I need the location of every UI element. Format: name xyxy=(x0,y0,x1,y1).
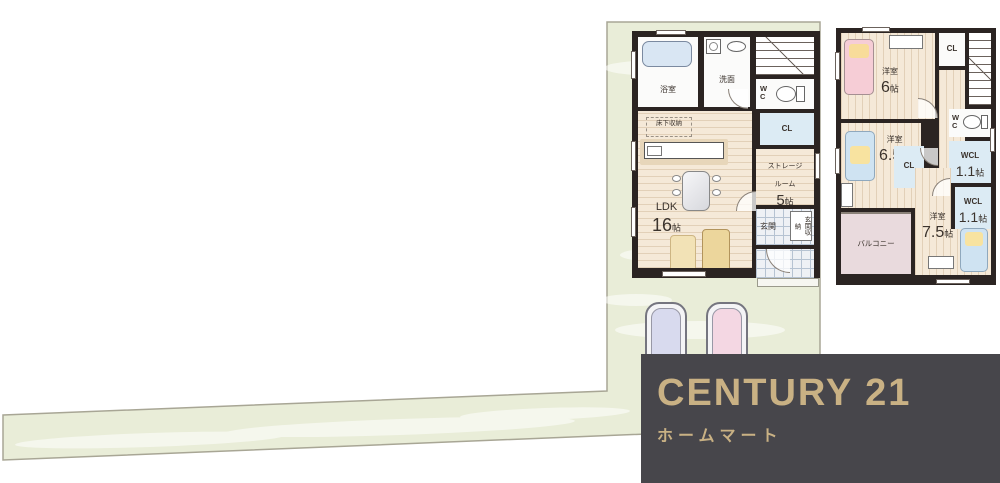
chair-icon xyxy=(672,189,681,196)
century21-logo: CENTURY 21 ホームマート xyxy=(641,354,1000,483)
toilet-icon xyxy=(796,86,805,102)
window-mark xyxy=(835,52,840,80)
underfloor-storage-label: 床下収納 xyxy=(647,120,691,128)
closet-top-label: CL xyxy=(939,44,965,53)
wc-label: WC xyxy=(760,85,769,100)
toilet-icon xyxy=(963,115,981,129)
bedroom-6-5-name: 洋室 xyxy=(887,135,903,144)
walk-in-closet-1: WCL 1.1帖 xyxy=(949,141,991,183)
ldk-size-unit: 帖 xyxy=(672,223,681,233)
window-mark xyxy=(631,51,636,79)
storage-room: ストレージ ルーム 5帖 xyxy=(756,149,814,205)
ldk-name: LDK xyxy=(656,201,677,213)
closet-top: CL xyxy=(939,33,965,66)
storage-size-number: 5 xyxy=(776,192,784,205)
chair-icon xyxy=(672,175,681,182)
chair-icon xyxy=(712,175,721,182)
ldk-label: LDK 16帖 xyxy=(652,197,681,237)
pillow-icon xyxy=(965,232,983,246)
bathtub-icon xyxy=(642,41,692,67)
wcl1-name: WCL xyxy=(961,151,979,160)
bedroom-7-5-name: 洋室 xyxy=(930,212,946,221)
brand-name: CENTURY 21 xyxy=(657,374,1000,412)
bedroom-6-name: 洋室 xyxy=(882,67,898,76)
bathroom: 浴室 xyxy=(638,37,698,107)
wcl1-label: WCL 1.1帖 xyxy=(949,145,991,182)
window-mark xyxy=(835,148,840,174)
walk-in-closet-2: WCL 1.1帖 xyxy=(955,187,991,229)
bedroom-7-5-label: 洋室 7.5帖 xyxy=(922,206,953,243)
toilet-tank-icon xyxy=(981,115,988,129)
entrance-step xyxy=(757,278,819,287)
sink-icon xyxy=(727,41,746,52)
washing-machine-icon xyxy=(706,39,721,54)
washroom-label: 洗面 xyxy=(704,75,750,84)
desk-icon xyxy=(889,35,923,49)
toilet-bowl-icon xyxy=(776,86,796,102)
window-mark xyxy=(631,141,636,171)
desk-icon xyxy=(928,256,954,269)
storage-label-line2: ルーム xyxy=(775,181,796,188)
entrance-label: 玄関 xyxy=(760,222,776,231)
dining-table-icon xyxy=(682,171,710,211)
bed-icon xyxy=(844,39,874,95)
bedroom-7-5-size-unit: 帖 xyxy=(944,229,953,239)
bedroom-6-label: 洋室 6帖 xyxy=(881,61,899,98)
ldk-room: 床下収納 LDK 16帖 xyxy=(638,111,752,268)
ldk-size-number: 16 xyxy=(652,215,672,235)
pillow-icon xyxy=(849,44,869,58)
door-arc xyxy=(918,98,938,118)
kitchen-counter-icon xyxy=(644,142,724,159)
chair-icon xyxy=(712,189,721,196)
window-mark xyxy=(815,153,820,179)
closet-label: CL xyxy=(760,124,814,133)
storage-room-label: ストレージ ルーム 5帖 xyxy=(756,155,814,205)
stairs-second-floor xyxy=(969,33,991,105)
window-mark xyxy=(936,279,970,284)
wcl2-name: WCL xyxy=(964,197,982,206)
window-mark xyxy=(662,271,706,277)
wcl2-label: WCL 1.1帖 xyxy=(955,191,991,228)
storage-label-line1: ストレージ xyxy=(768,163,803,170)
desk-icon xyxy=(841,183,853,207)
bed-icon xyxy=(960,228,988,272)
wc-second-floor: WC xyxy=(949,109,991,137)
ottoman-icon xyxy=(670,235,696,268)
pillow-icon xyxy=(850,146,870,164)
stairs-first-floor xyxy=(756,37,814,75)
closet-first-floor: CL xyxy=(760,113,814,145)
floorplan-canvas: 浴室 洗面 WC CL 床下収納 xyxy=(0,0,1000,483)
balcony: バルコニー xyxy=(841,212,911,274)
wcl2-size-unit: 帖 xyxy=(978,214,987,224)
wcl1-size-number: 1.1 xyxy=(956,163,975,179)
entrance-door-arc xyxy=(766,249,790,273)
bathroom-label: 浴室 xyxy=(638,85,698,94)
bed-icon xyxy=(845,131,875,181)
storage-size-unit: 帖 xyxy=(785,197,794,205)
second-floor-plan: 洋室 6帖 CL WC WCL 1.1帖 WCL xyxy=(836,28,996,285)
balcony-label: バルコニー xyxy=(841,240,911,249)
wc-first-floor: WC xyxy=(756,79,814,109)
window-mark xyxy=(990,128,995,152)
window-mark xyxy=(656,30,686,35)
window-mark xyxy=(862,27,890,32)
first-floor-plan: 浴室 洗面 WC CL 床下収納 xyxy=(632,31,820,278)
bedroom-6-size-unit: 帖 xyxy=(890,84,899,94)
underfloor-storage: 床下収納 xyxy=(646,117,692,137)
stove-icon xyxy=(647,146,662,156)
wcl2-size-number: 1.1 xyxy=(959,209,978,225)
entrance-storage-label: 玄関収納 xyxy=(790,211,812,241)
wcl1-size-unit: 帖 xyxy=(975,168,984,178)
entrance: 玄関 玄関収納 xyxy=(756,209,814,245)
bedroom-7-5-size-number: 7.5 xyxy=(922,224,944,241)
company-name: ホームマート xyxy=(657,422,1000,446)
entrance-porch xyxy=(756,249,814,278)
sofa-icon xyxy=(702,229,730,268)
wc-second-label: WC xyxy=(952,114,961,129)
window-mark xyxy=(631,207,636,237)
bedroom-6-size-number: 6 xyxy=(881,79,890,96)
